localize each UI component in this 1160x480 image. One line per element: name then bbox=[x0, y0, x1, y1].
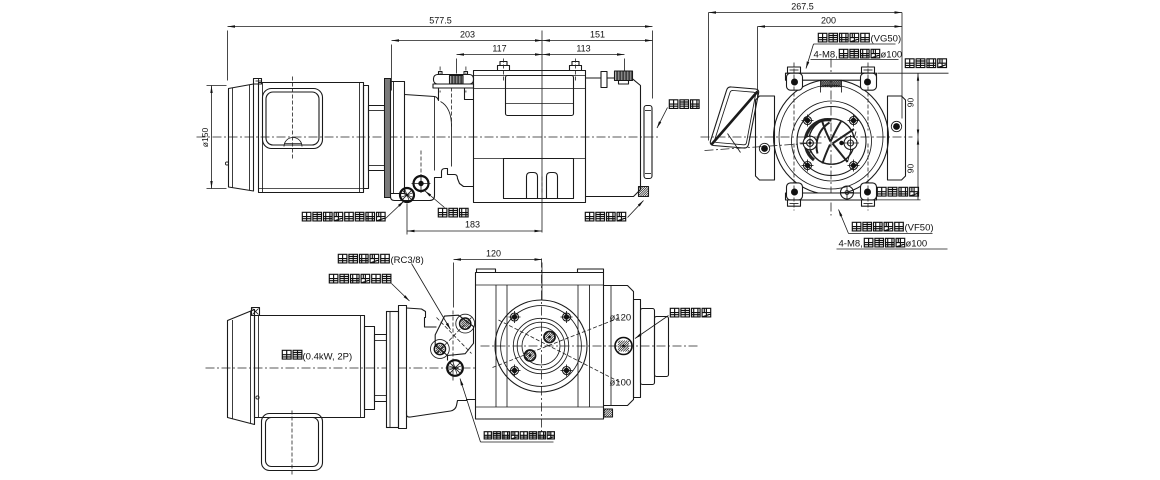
svg-text:90: 90 bbox=[906, 164, 916, 174]
svg-text:ø100: ø100 bbox=[906, 239, 928, 250]
svg-text:ø100: ø100 bbox=[881, 50, 903, 61]
svg-text:(VF50): (VF50) bbox=[905, 223, 934, 234]
svg-text:267.5: 267.5 bbox=[791, 2, 814, 12]
svg-text:113: 113 bbox=[576, 44, 590, 54]
svg-text:120: 120 bbox=[486, 249, 501, 259]
svg-text:90: 90 bbox=[906, 98, 916, 108]
svg-text:151: 151 bbox=[590, 30, 605, 40]
svg-text:200: 200 bbox=[821, 16, 836, 26]
svg-text:ø100: ø100 bbox=[610, 378, 632, 389]
svg-text:577.5: 577.5 bbox=[429, 16, 452, 26]
svg-text:(RC3/8): (RC3/8) bbox=[391, 255, 424, 266]
svg-text:183: 183 bbox=[465, 220, 480, 230]
svg-text:4-M8,: 4-M8, bbox=[814, 50, 838, 61]
svg-text:203: 203 bbox=[460, 30, 475, 40]
svg-text:4-M8,: 4-M8, bbox=[839, 239, 863, 250]
svg-text:ø120: ø120 bbox=[610, 313, 632, 324]
svg-text:(VG50): (VG50) bbox=[871, 34, 902, 45]
svg-text:(0.4kW, 2P): (0.4kW, 2P) bbox=[303, 352, 353, 363]
svg-text:117: 117 bbox=[492, 44, 506, 54]
